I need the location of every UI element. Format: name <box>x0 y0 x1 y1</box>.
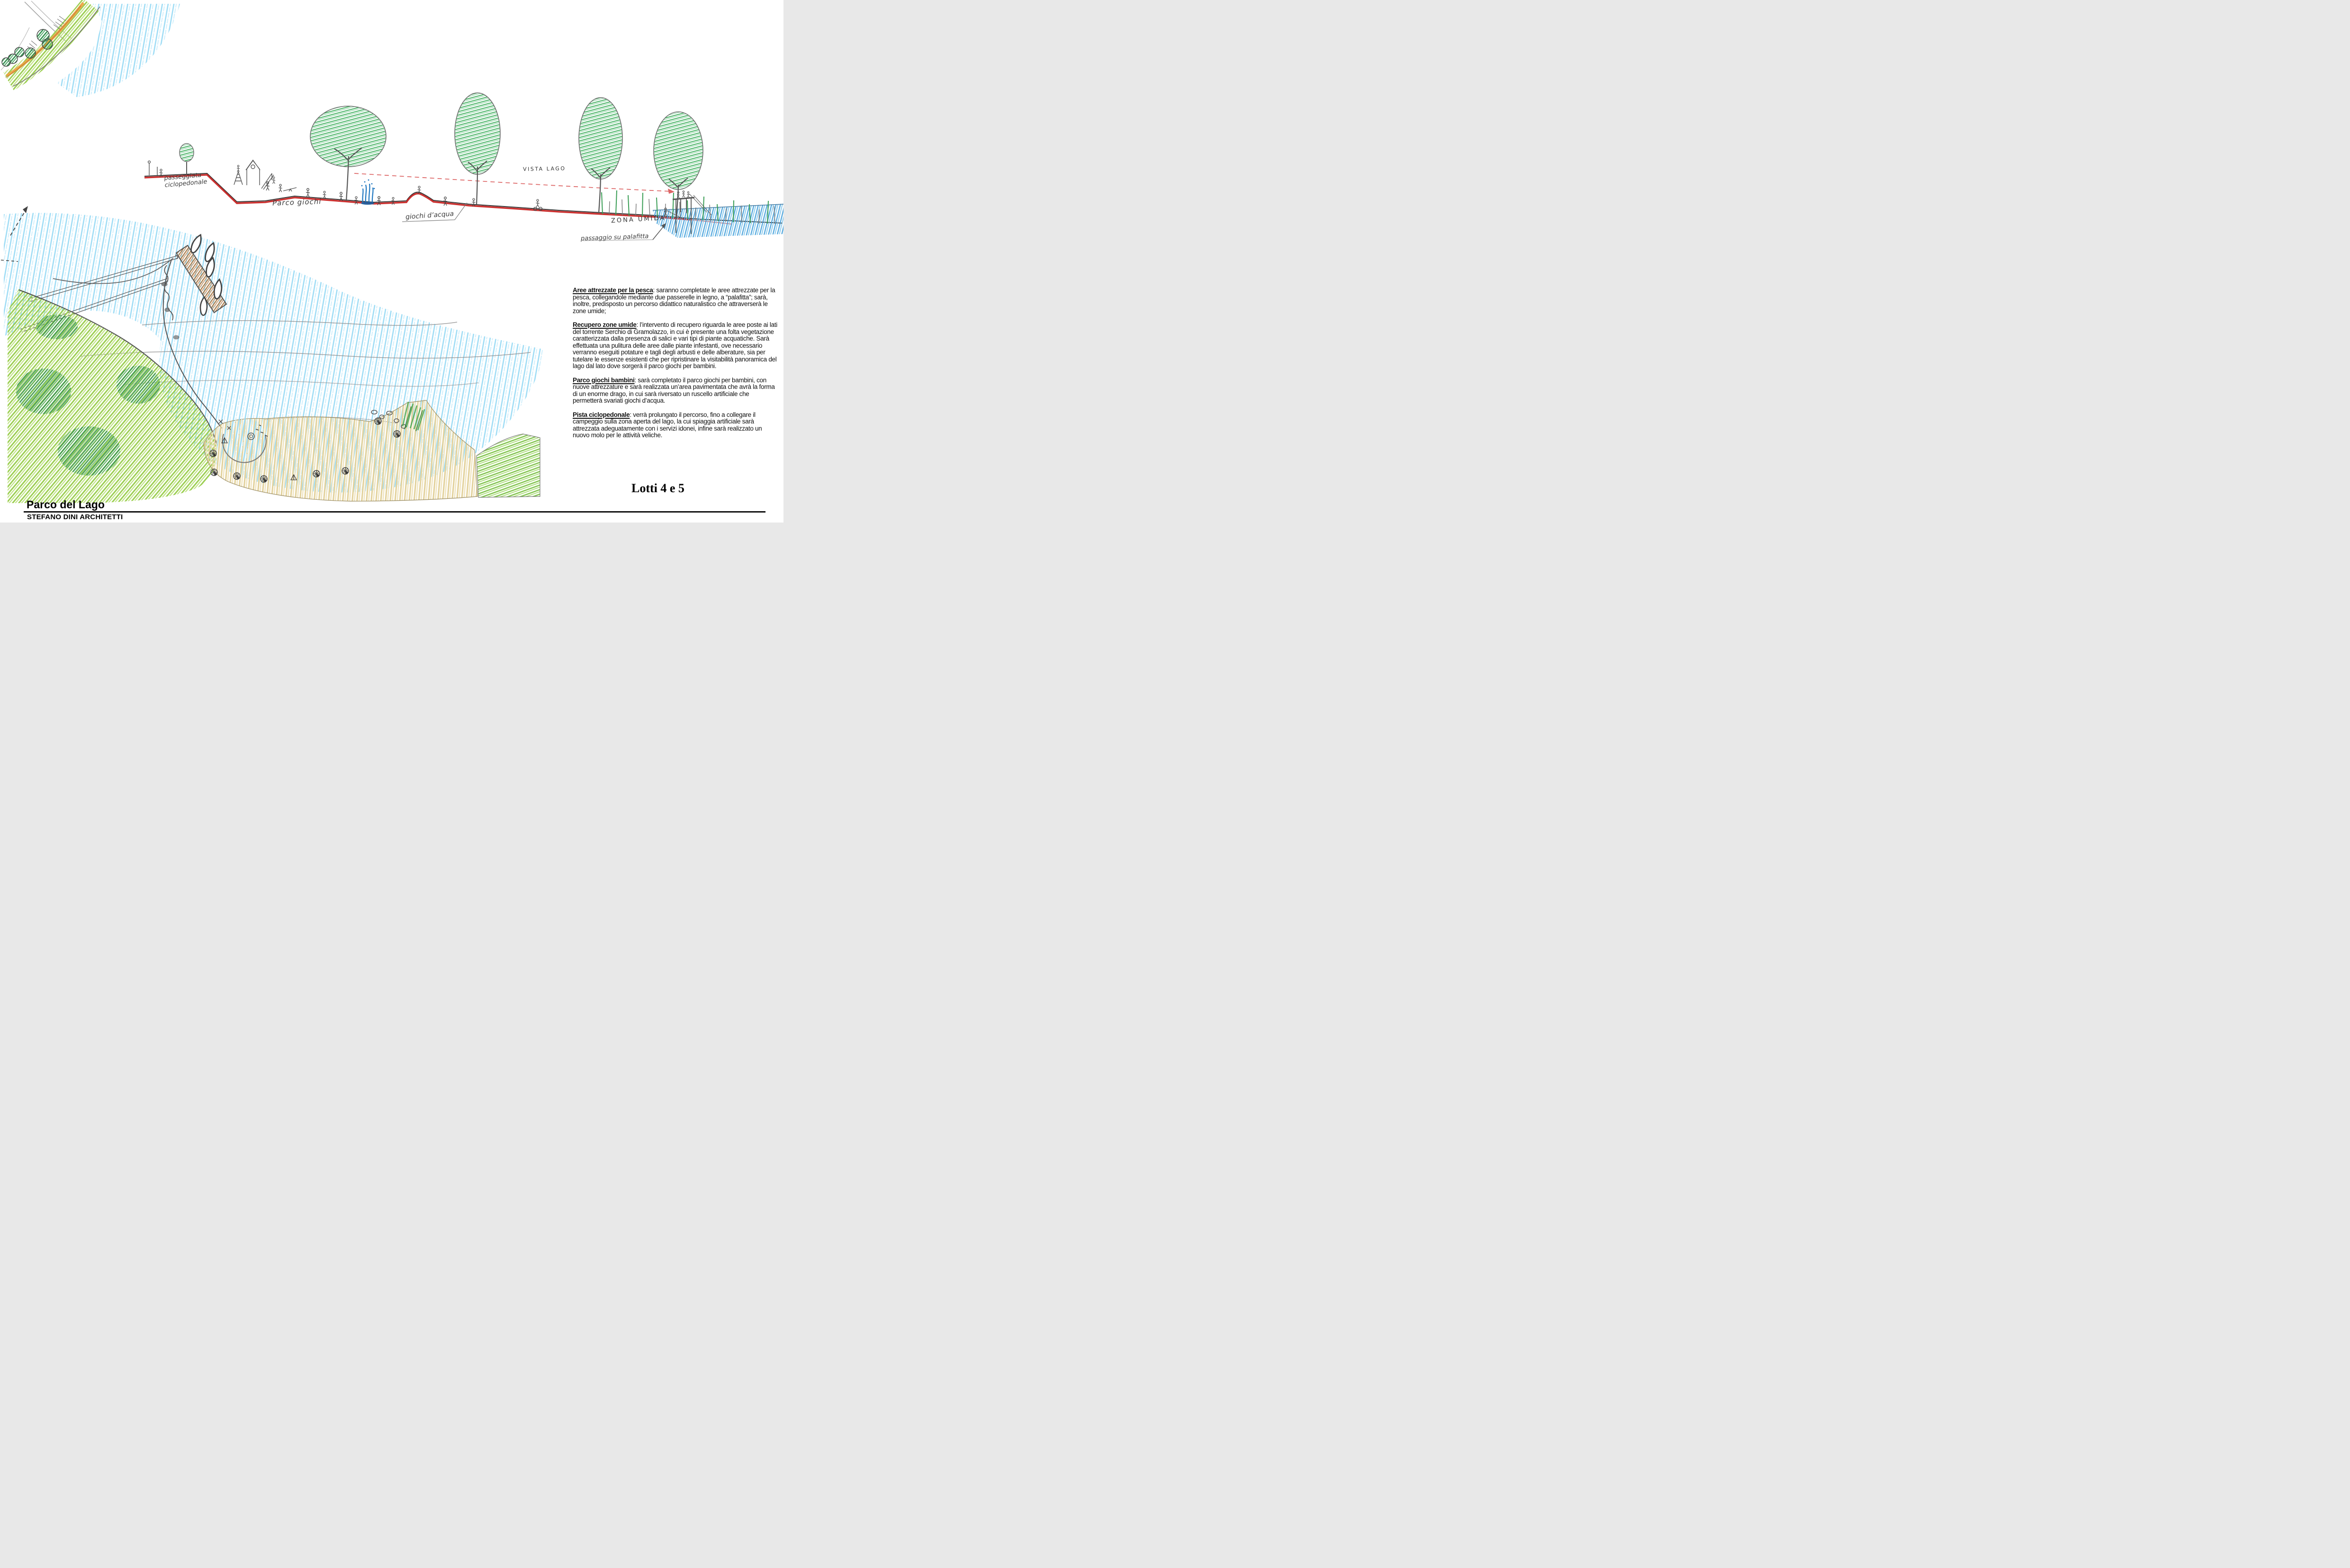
section-sketch <box>144 93 783 241</box>
lamp-head <box>148 161 151 163</box>
lake-plan-sketch <box>1 206 545 503</box>
plan-northwest-shore-sketch <box>1 1 180 97</box>
note-fishing-areas: Aree attrezzate per la pesca: saranno co… <box>573 287 780 315</box>
lot-label: Lotti 4 e 5 <box>631 481 684 496</box>
note-heading: Aree attrezzate per la pesca <box>573 287 653 294</box>
note-body: : l’intervento di recupero riguarda le a… <box>573 321 777 369</box>
note-heading: Parco giochi bambini <box>573 377 635 384</box>
title-rule <box>24 511 765 513</box>
sight-line-dashed <box>354 173 672 191</box>
studio-name: STEFANO DINI ARCHITETTI <box>27 513 123 521</box>
notes-column: Aree attrezzate per la pesca: saranno co… <box>573 287 780 446</box>
walkway-figures <box>677 191 690 198</box>
beach-cove-water <box>223 418 266 461</box>
lamp-post <box>149 163 157 175</box>
label-lake-view: VISTA LAGO <box>523 165 566 172</box>
play-house-window <box>251 165 255 169</box>
note-wetland-recovery: Recupero zone umide: l’intervento di rec… <box>573 322 780 370</box>
presentation-board: passeggiata ciclopedonale Parco giochi g… <box>0 0 783 523</box>
climbing-frame <box>234 171 243 185</box>
note-heading: Pista ciclopedonale <box>573 411 630 418</box>
seesaw <box>283 188 297 191</box>
project-title: Parco del Lago <box>27 498 105 511</box>
section-trees <box>180 93 703 218</box>
label-playground: Parco giochi <box>272 197 322 207</box>
note-heading: Recupero zone umide <box>573 321 637 328</box>
note-children-playground: Parco giochi bambini: sarà completato il… <box>573 377 780 405</box>
fountain-water-jets <box>361 180 375 205</box>
play-house <box>246 160 260 185</box>
note-cycle-path: Pista ciclopedonale: verrà prolungato il… <box>573 412 780 439</box>
